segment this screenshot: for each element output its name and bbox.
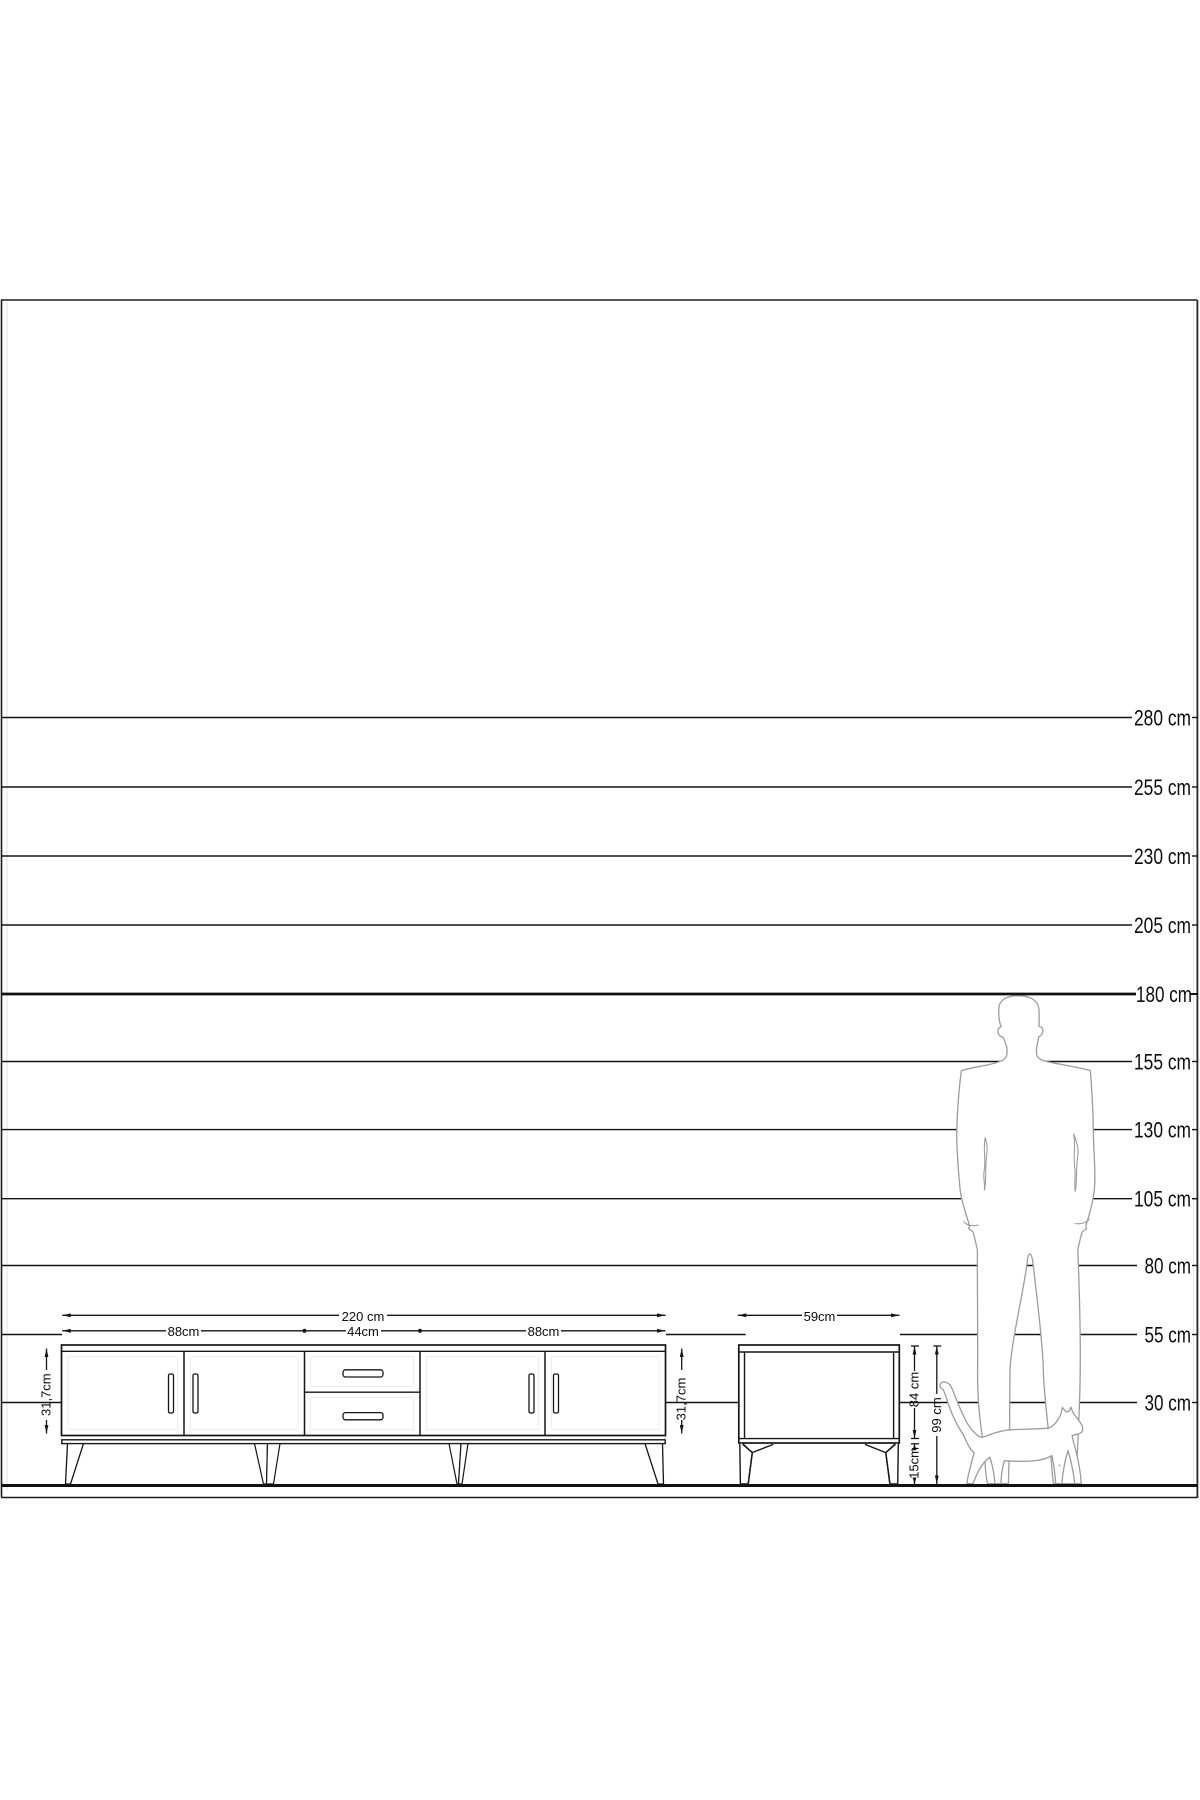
svg-text:55 cm: 55 cm xyxy=(1145,1323,1192,1348)
svg-text:220 cm: 220 cm xyxy=(342,1309,385,1324)
svg-text:44cm: 44cm xyxy=(347,1324,379,1339)
svg-text:105 cm: 105 cm xyxy=(1134,1187,1191,1212)
svg-text:255 cm: 255 cm xyxy=(1134,775,1191,800)
svg-text:30 cm: 30 cm xyxy=(1145,1391,1192,1416)
svg-text:130 cm: 130 cm xyxy=(1134,1118,1191,1143)
svg-text:205 cm: 205 cm xyxy=(1134,913,1191,938)
svg-text:31,7cm: 31,7cm xyxy=(39,1373,54,1416)
svg-text:99 cm: 99 cm xyxy=(929,1397,944,1432)
svg-text:155 cm: 155 cm xyxy=(1134,1050,1191,1075)
svg-text:88cm: 88cm xyxy=(168,1324,200,1339)
svg-text:180 cm: 180 cm xyxy=(1136,982,1192,1007)
svg-text:230 cm: 230 cm xyxy=(1134,844,1191,869)
svg-text:80 cm: 80 cm xyxy=(1145,1254,1192,1279)
svg-text:84 cm: 84 cm xyxy=(907,1372,922,1407)
svg-text:31,7cm: 31,7cm xyxy=(674,1378,689,1421)
svg-text:88cm: 88cm xyxy=(528,1324,560,1339)
svg-text:59cm: 59cm xyxy=(804,1309,836,1324)
svg-text:280 cm: 280 cm xyxy=(1134,706,1191,731)
svg-text:15cm: 15cm xyxy=(907,1447,922,1479)
